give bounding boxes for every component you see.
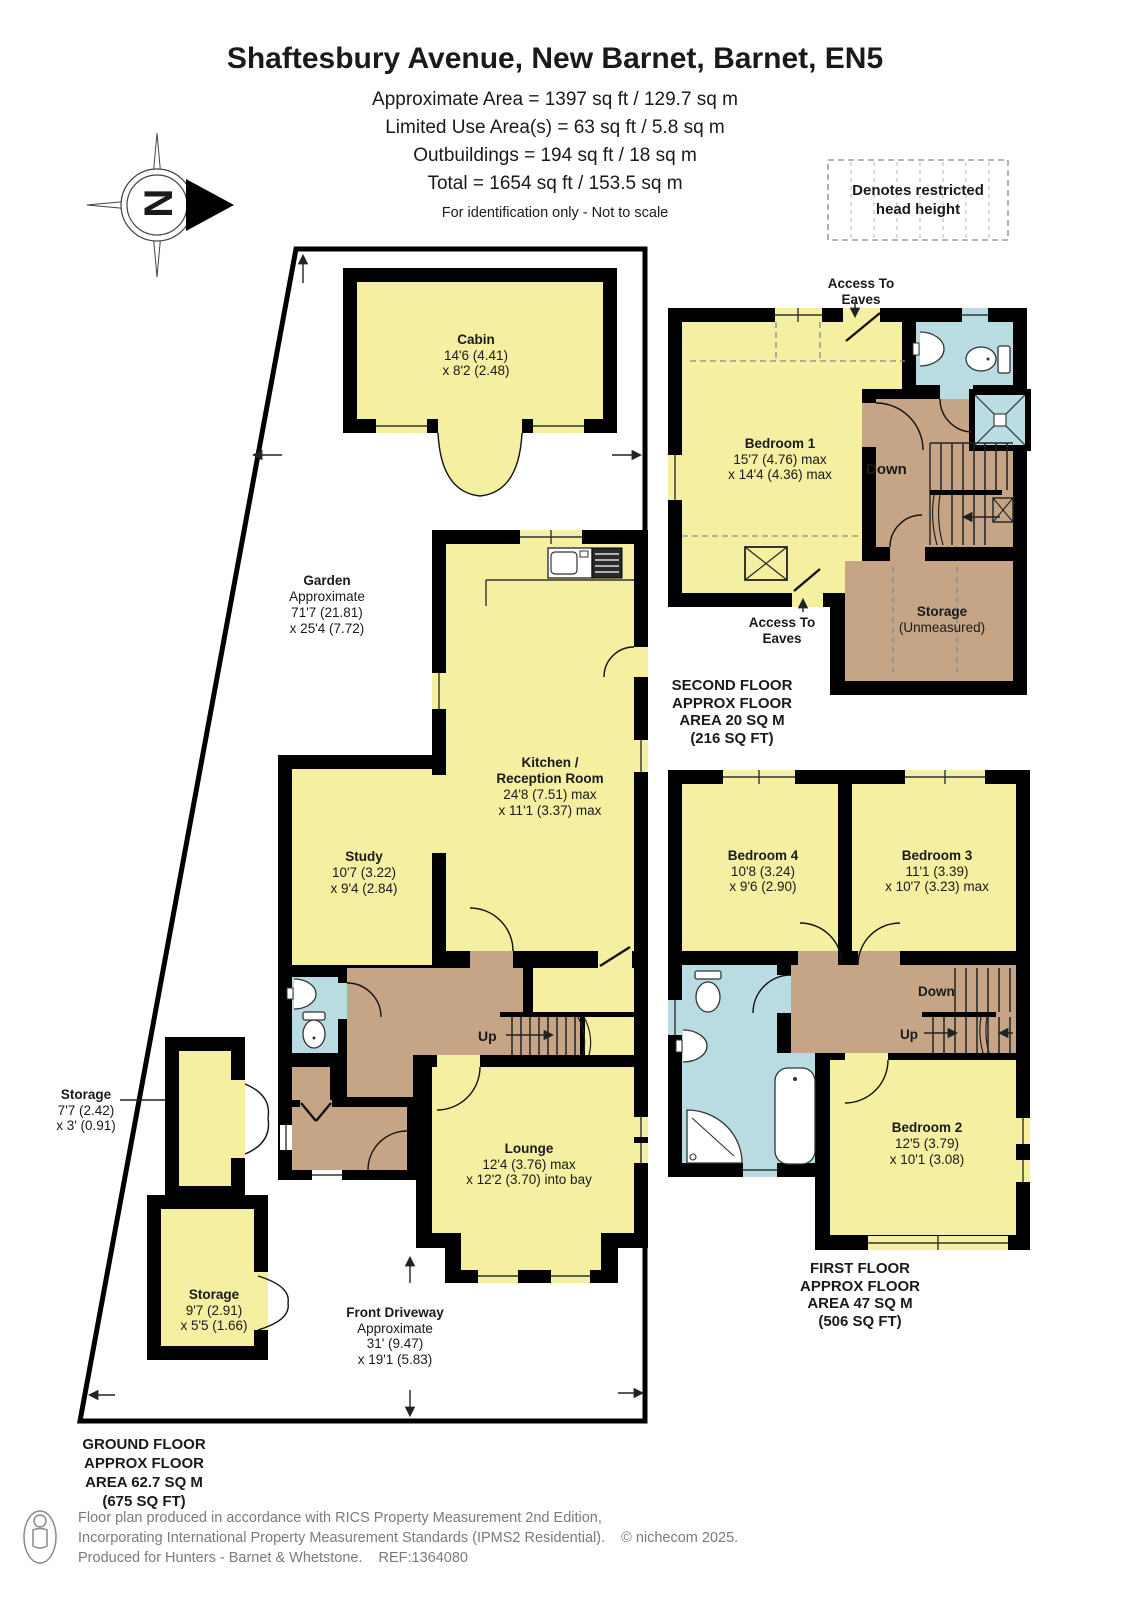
first-floor-plan — [668, 770, 1030, 1250]
kitchen-room — [446, 544, 634, 951]
floorplan-page: Shaftesbury Avenue, New Barnet, Barnet, … — [0, 0, 1131, 1599]
entrance-vestibule — [292, 1107, 407, 1170]
first-toilet — [696, 982, 720, 1012]
ground-floor-plan — [80, 249, 648, 1421]
cabin-outbuilding — [343, 268, 617, 496]
second-toilet — [966, 347, 996, 371]
second-shower — [969, 389, 1031, 451]
first-landing — [791, 965, 1016, 1053]
floorplan-drawing — [0, 0, 1131, 1599]
study-room — [292, 769, 432, 965]
second-storage-room — [845, 561, 1013, 681]
storage-small-outbuilding — [165, 1037, 269, 1200]
storage-large-outbuilding — [147, 1195, 288, 1360]
skylight — [745, 547, 787, 580]
bedroom3-room — [852, 784, 1016, 951]
lounge-room — [432, 1067, 634, 1233]
bedroom2-room — [830, 1060, 1016, 1235]
north-compass-icon — [87, 133, 234, 277]
wc-toilet — [303, 1020, 325, 1048]
nichecom-logo-icon — [24, 1511, 56, 1563]
kitchen-hob — [592, 548, 622, 578]
first-bathtub — [775, 1068, 815, 1164]
second-floor-plan — [668, 302, 1031, 695]
hallway — [347, 968, 523, 1055]
restricted-height-legend-box — [828, 160, 1008, 240]
